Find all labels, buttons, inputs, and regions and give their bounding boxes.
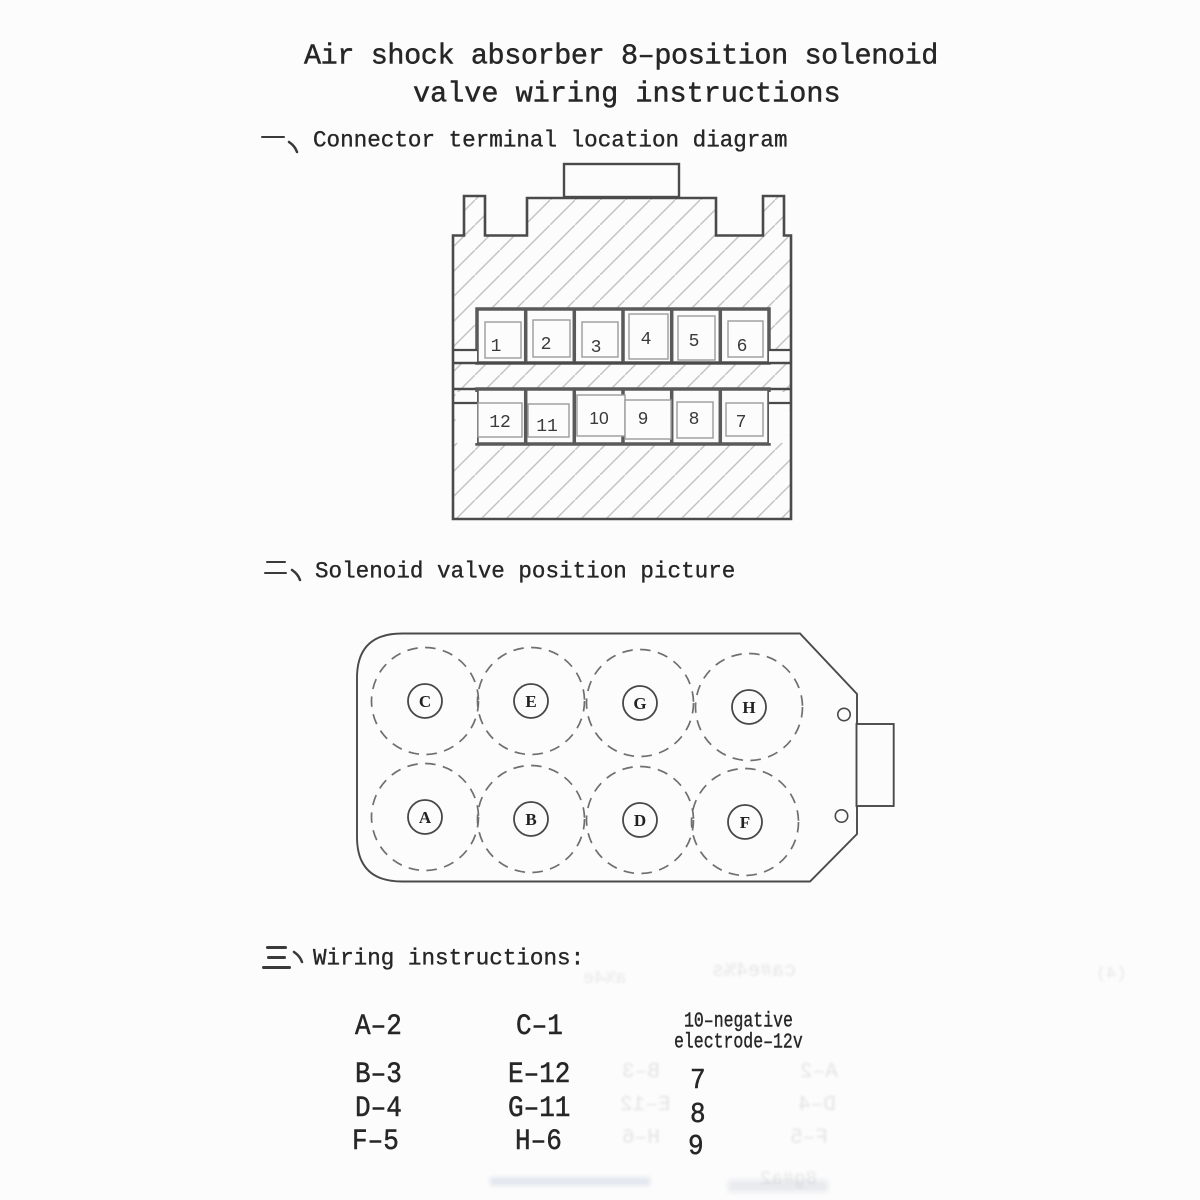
- svg-text:A: A: [419, 808, 432, 827]
- svg-text:F: F: [740, 813, 750, 832]
- svg-text:4: 4: [641, 330, 652, 350]
- svg-text:E: E: [525, 692, 536, 711]
- svg-text:D: D: [634, 811, 646, 830]
- svg-text:6: 6: [737, 337, 748, 357]
- svg-text:1: 1: [491, 337, 502, 357]
- svg-text:9: 9: [638, 410, 649, 430]
- svg-text:H: H: [742, 698, 755, 717]
- svg-text:3: 3: [591, 338, 602, 358]
- svg-text:7: 7: [736, 413, 747, 433]
- svg-text:C: C: [419, 692, 431, 711]
- svg-text:2: 2: [541, 335, 552, 355]
- svg-text:8: 8: [689, 410, 700, 430]
- svg-text:5: 5: [689, 332, 700, 352]
- svg-text:12: 12: [489, 413, 511, 433]
- svg-text:10: 10: [589, 408, 609, 428]
- svg-text:11: 11: [536, 417, 558, 437]
- svg-text:G: G: [633, 694, 646, 713]
- svg-text:B: B: [525, 810, 536, 829]
